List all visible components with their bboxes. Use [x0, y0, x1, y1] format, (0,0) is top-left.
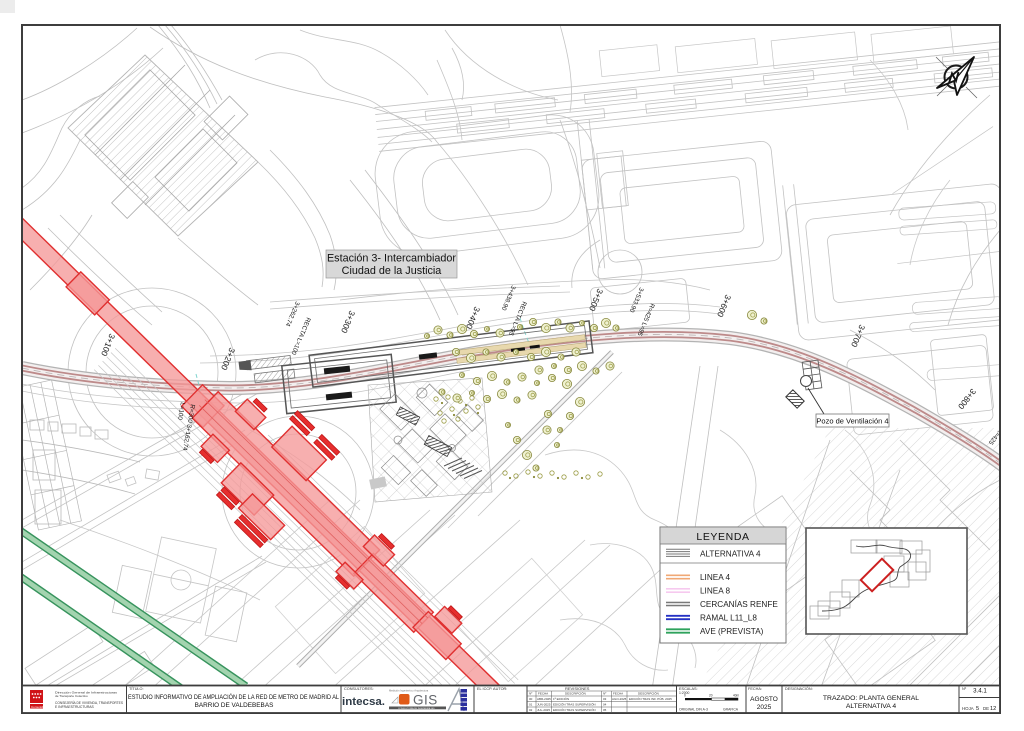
svg-text:E INFRAESTRUCTURAS: E INFRAESTRUCTURAS: [55, 705, 95, 709]
svg-text:Pozo de Ventilación 4: Pozo de Ventilación 4: [816, 417, 888, 426]
svg-text:JUL-2025: JUL-2025: [537, 708, 550, 712]
svg-text:FECHA: FECHA: [613, 692, 623, 696]
svg-text:BARRIO DE VALDEBEBAS: BARRIO DE VALDEBEBAS: [195, 702, 274, 709]
svg-text:Nº: Nº: [962, 687, 967, 691]
svg-text:REVISIONES: REVISIONES: [565, 686, 590, 691]
svg-text:AGOSTO: AGOSTO: [750, 696, 778, 703]
svg-text:3.4.1: 3.4.1: [973, 688, 987, 695]
svg-text:FECHA: FECHA: [538, 692, 548, 696]
svg-text:1ª EDICIÓN: 1ª EDICIÓN: [553, 696, 569, 701]
svg-text:ALTERNATIVA 4: ALTERNATIVA 4: [700, 550, 761, 559]
svg-text:Ciudad de la Justicia: Ciudad de la Justicia: [342, 265, 442, 277]
svg-text:40m: 40m: [733, 694, 740, 698]
svg-text:Estación 3- Intercambiador: Estación 3- Intercambiador: [327, 253, 456, 265]
svg-text:CERCANÍAS RENFE: CERCANÍAS RENFE: [700, 599, 778, 609]
svg-text:ESTUDIO INFORMATIVO DE AMPLIAC: ESTUDIO INFORMATIVO DE AMPLIACIÓN DE LA …: [128, 692, 339, 701]
svg-text:TRAZADO: PLANTA GENERAL: TRAZADO: PLANTA GENERAL: [823, 695, 919, 702]
svg-text:EDICIÓN TRAS INF. PÚB. 2025: EDICIÓN TRAS INF. PÚB. 2025: [629, 696, 672, 701]
svg-text:2025: 2025: [757, 704, 772, 711]
svg-text:00: 00: [529, 697, 533, 701]
svg-text:03: 03: [603, 697, 607, 701]
svg-text:12: 12: [990, 706, 996, 712]
svg-text:ORIGINAL DIN A-3: ORIGINAL DIN A-3: [679, 708, 708, 712]
svg-text:FECHA:: FECHA:: [748, 687, 762, 691]
svg-text:TÍTULO:: TÍTULO:: [129, 687, 144, 691]
svg-text:04: 04: [603, 703, 607, 707]
svg-text:20: 20: [709, 694, 713, 698]
svg-text:AGO-2025: AGO-2025: [612, 697, 627, 701]
svg-text:JUN-2025: JUN-2025: [537, 703, 551, 707]
svg-text:DESIGNACIÓN:: DESIGNACIÓN:: [785, 686, 813, 691]
svg-text:01: 01: [529, 703, 533, 707]
svg-text:02: 02: [529, 708, 533, 712]
svg-text:0: 0: [684, 694, 686, 698]
svg-text:LEYENDA: LEYENDA: [696, 531, 749, 543]
svg-text:ALTERNATIVA 4: ALTERNATIVA 4: [846, 703, 896, 710]
svg-text:CONSULTORES:: CONSULTORES:: [344, 687, 374, 691]
svg-text:AVE (PREVISTA): AVE (PREVISTA): [700, 627, 764, 636]
svg-text:GRAFICA: GRAFICA: [723, 708, 739, 712]
svg-text:DESCRIPCIÓN: DESCRIPCIÓN: [638, 691, 659, 696]
svg-text:GIS: GIS: [413, 693, 438, 708]
svg-text:LINEA 8: LINEA 8: [700, 587, 730, 596]
svg-text:DESCRIPCIÓN: DESCRIPCIÓN: [565, 691, 586, 696]
svg-text:HOJA: HOJA: [962, 706, 974, 711]
svg-text:CONSULTORÍA DE INGENIERÍA G: CONSULTORÍA DE INGENIERÍA GIS: [398, 707, 435, 710]
svg-text:EL ICCP. AUTOR:: EL ICCP. AUTOR:: [477, 687, 507, 691]
svg-text:ABR-2025: ABR-2025: [537, 697, 551, 701]
svg-text:RAMAL L11_L8: RAMAL L11_L8: [700, 614, 757, 623]
svg-text:EDICIÓN TRAS SUPERVISIÓN: EDICIÓN TRAS SUPERVISIÓN: [553, 702, 596, 707]
svg-text:5: 5: [976, 706, 979, 712]
svg-text:intecsa.: intecsa.: [342, 696, 385, 708]
svg-text:05: 05: [603, 708, 607, 712]
svg-text:Comunidad: Comunidad: [31, 705, 47, 709]
svg-text:LINEA 4: LINEA 4: [700, 573, 730, 582]
svg-text:DE: DE: [983, 706, 989, 711]
svg-text:EDICIÓN TRAS SUPERVISIÓN: EDICIÓN TRAS SUPERVISIÓN: [553, 707, 596, 712]
svg-text:de Transporte Colectivo: de Transporte Colectivo: [55, 694, 88, 698]
